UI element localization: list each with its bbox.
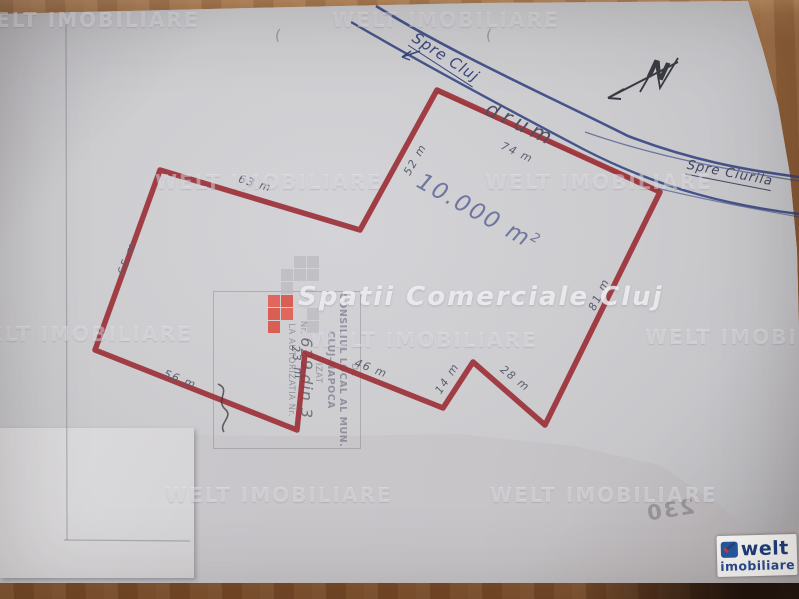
watermark-tile: WELT IMOBILIARE — [0, 322, 193, 346]
welt-checkmark-icon — [721, 542, 738, 558]
watermark-tile: WELT IMOBILIARE — [485, 170, 713, 194]
spatii-logo-pixel — [294, 256, 306, 268]
spatii-logo-pixel — [268, 308, 280, 320]
pencil-squiggle — [218, 384, 228, 432]
spatii-logo-pixel — [268, 321, 280, 333]
spatii-logo-pixel — [281, 308, 293, 320]
spatii-logo-pixel — [307, 256, 319, 268]
spatii-logo-pixel — [294, 269, 306, 281]
pencil-frame-vertical — [66, 25, 67, 540]
spatii-logo-pixel — [307, 269, 319, 281]
watermark-tile: WELT IMOBILIARE — [310, 328, 538, 352]
spatii-logo-pixel — [307, 321, 319, 333]
spatii-logo-pixel — [281, 295, 293, 307]
spatii-watermark-text: Spatii Comerciale Cluj — [298, 282, 664, 312]
spatii-logo-pixel — [281, 282, 293, 294]
watermark-tile: WELT IMOBILIARE — [155, 170, 383, 194]
welt-logo-subtitle: imobiliare — [720, 557, 795, 574]
watermark-tile: WELT IMOBILIARE — [332, 8, 560, 32]
north-arrowhead — [608, 89, 624, 99]
photographed-site-plan: DE CONSILIUL LOCAL AL MUN. CLUJ-NAPOCA V… — [0, 0, 799, 599]
watermark-tile: WELT IMOBILIARE — [490, 483, 718, 507]
spatii-logo-pixel — [281, 269, 293, 281]
welt-imobiliare-logo: welt imobiliare — [716, 534, 797, 577]
watermark-tile: WELT IMOBILIARE — [645, 325, 799, 349]
pencil-frame-horizontal — [64, 540, 190, 541]
watermark-tile: WELT IMOBILIARE — [0, 8, 200, 32]
watermark-tile: WELT IMOBILIARE — [165, 483, 393, 507]
spatii-logo-pixel — [268, 295, 280, 307]
